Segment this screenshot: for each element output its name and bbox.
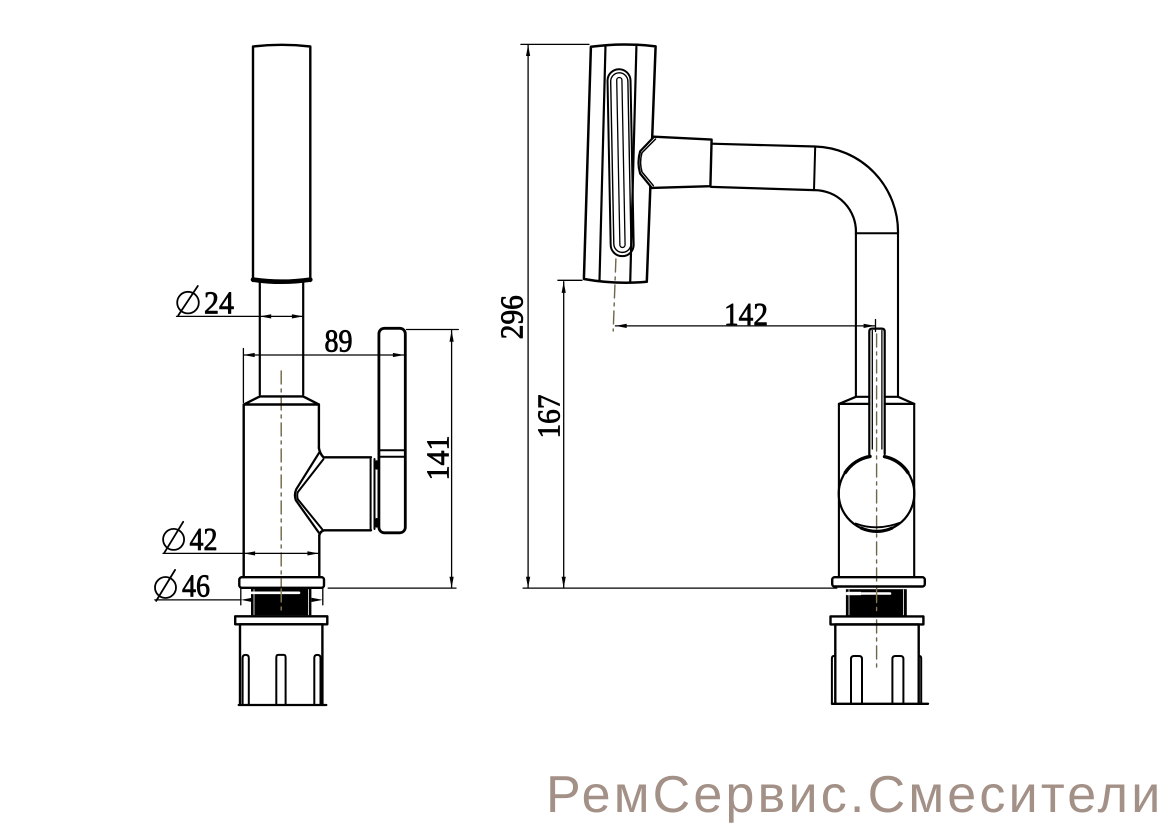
svg-text:24: 24 [204,285,234,321]
svg-text:167: 167 [531,395,567,439]
svg-text:46: 46 [182,568,210,604]
svg-text:42: 42 [190,521,218,557]
svg-text:142: 142 [724,296,768,332]
svg-text:89: 89 [325,322,353,358]
svg-text:296: 296 [494,295,530,339]
svg-text:РемСервис.Смесители: РемСервис.Смесители [546,766,1163,824]
svg-text:141: 141 [420,436,456,481]
